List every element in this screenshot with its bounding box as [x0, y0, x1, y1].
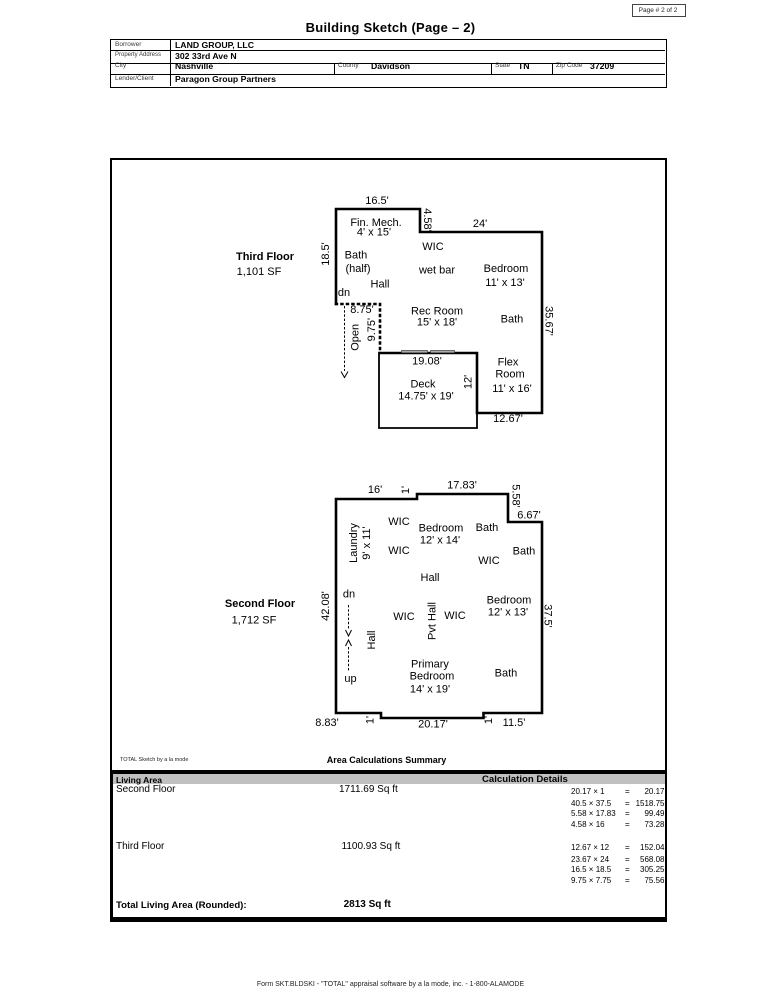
- svg-text:16.5': 16.5': [365, 195, 389, 207]
- svg-text:Bedroom: Bedroom: [419, 523, 464, 535]
- svg-text:17.83': 17.83': [447, 480, 477, 492]
- svg-text:up: up: [344, 673, 356, 685]
- svg-text:42.08': 42.08': [320, 591, 332, 621]
- svg-text:Room: Room: [495, 369, 524, 381]
- svg-text:1': 1': [483, 716, 495, 724]
- svg-text:Second Floor: Second Floor: [225, 598, 296, 610]
- svg-text:Flex: Flex: [498, 357, 519, 369]
- svg-text:WIC: WIC: [422, 241, 443, 253]
- svg-text:5.58': 5.58': [509, 484, 521, 508]
- svg-text:Laundry: Laundry: [348, 523, 360, 563]
- svg-text:Third Floor: Third Floor: [236, 251, 295, 263]
- svg-text:WIC: WIC: [393, 611, 414, 623]
- svg-text:14' x 19': 14' x 19': [410, 684, 450, 696]
- svg-text:wet bar: wet bar: [418, 265, 455, 277]
- svg-text:Hall: Hall: [366, 631, 378, 650]
- svg-text:Bath: Bath: [501, 314, 524, 326]
- svg-text:1,712 SF: 1,712 SF: [232, 615, 277, 627]
- svg-text:dn: dn: [338, 287, 350, 299]
- svg-text:Pvt Hall: Pvt Hall: [427, 602, 439, 640]
- svg-text:11.5': 11.5': [503, 717, 526, 729]
- svg-text:WIC: WIC: [478, 555, 499, 567]
- svg-text:11' x 13': 11' x 13': [485, 277, 524, 289]
- svg-text:19.08': 19.08': [412, 356, 442, 368]
- svg-text:12' x 13': 12' x 13': [488, 607, 528, 619]
- svg-text:1': 1': [365, 716, 377, 724]
- svg-text:Bedroom: Bedroom: [484, 263, 529, 275]
- svg-text:9.75': 9.75': [366, 318, 378, 342]
- svg-text:24': 24': [473, 218, 487, 230]
- svg-text:6.67': 6.67': [517, 509, 541, 521]
- svg-text:35.67': 35.67': [543, 306, 555, 336]
- svg-text:Bath: Bath: [476, 522, 499, 534]
- svg-text:WIC: WIC: [388, 516, 409, 528]
- svg-text:8.75': 8.75': [350, 304, 374, 316]
- svg-text:4.58': 4.58': [421, 208, 433, 232]
- svg-text:Bedroom: Bedroom: [487, 595, 532, 607]
- svg-text:Bedroom: Bedroom: [410, 671, 455, 683]
- svg-text:12': 12': [463, 375, 475, 389]
- svg-text:Hall: Hall: [371, 279, 390, 291]
- svg-text:16': 16': [368, 484, 382, 496]
- svg-text:9' x 11': 9' x 11': [361, 526, 373, 559]
- svg-text:dn: dn: [343, 589, 355, 601]
- svg-text:4' x 15': 4' x 15': [357, 227, 391, 239]
- svg-text:14.75' x 19': 14.75' x 19': [398, 391, 454, 403]
- svg-text:Hall: Hall: [421, 572, 440, 584]
- svg-text:15' x 18': 15' x 18': [417, 317, 457, 329]
- svg-text:20.17': 20.17': [418, 719, 448, 731]
- svg-text:1,101 SF: 1,101 SF: [237, 266, 282, 278]
- svg-text:Deck: Deck: [410, 379, 436, 391]
- svg-text:Open: Open: [350, 324, 362, 351]
- svg-text:12.67': 12.67': [493, 413, 523, 425]
- svg-text:WIC: WIC: [444, 610, 465, 622]
- svg-text:18.5': 18.5': [320, 242, 332, 266]
- svg-text:Bath: Bath: [513, 546, 536, 558]
- svg-text:37.5': 37.5': [542, 604, 554, 628]
- svg-text:WIC: WIC: [388, 545, 409, 557]
- svg-text:(half): (half): [345, 263, 370, 275]
- svg-text:Bath: Bath: [495, 668, 518, 680]
- svg-text:Bath: Bath: [345, 250, 368, 262]
- svg-text:11' x 16': 11' x 16': [492, 383, 531, 395]
- svg-text:8.83': 8.83': [315, 717, 339, 729]
- svg-text:12' x 14': 12' x 14': [420, 535, 460, 547]
- svg-text:1': 1': [400, 486, 412, 494]
- svg-text:Primary: Primary: [411, 659, 449, 671]
